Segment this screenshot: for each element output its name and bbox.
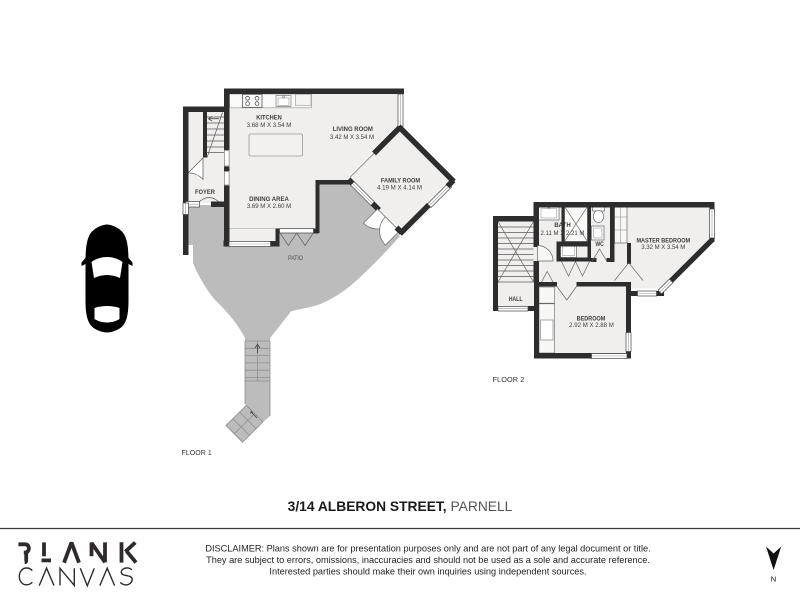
- svg-text:4.19 M X 4.14 M: 4.19 M X 4.14 M: [377, 184, 422, 191]
- svg-text:FLOOR 1: FLOOR 1: [182, 448, 212, 457]
- svg-text:BATH: BATH: [554, 222, 571, 229]
- svg-text:DISCLAIMER: Plans shown are fo: DISCLAIMER: Plans shown are for presenta…: [205, 544, 650, 554]
- svg-text:They are subject to errors, om: They are subject to errors, omissions, i…: [206, 555, 650, 565]
- svg-text:3.68 M X 3.54 M: 3.68 M X 3.54 M: [247, 122, 292, 129]
- svg-text:FOYER: FOYER: [195, 189, 215, 196]
- svg-text:Interested parties should make: Interested parties should make their own…: [269, 567, 586, 577]
- svg-text:HALL: HALL: [509, 296, 523, 303]
- svg-text:KITCHEN: KITCHEN: [256, 115, 282, 122]
- svg-text:3/14 ALBERON STREET, PARNELL: 3/14 ALBERON STREET, PARNELL: [288, 499, 513, 514]
- svg-text:WC: WC: [595, 241, 604, 248]
- svg-text:FLOOR 2: FLOOR 2: [493, 375, 525, 384]
- svg-text:3.69 M X 2.60 M: 3.69 M X 2.60 M: [247, 203, 291, 210]
- svg-text:DINING AREA: DINING AREA: [249, 196, 289, 203]
- svg-text:N: N: [771, 575, 776, 584]
- svg-text:2.92 M X 2.88 M: 2.92 M X 2.88 M: [569, 322, 614, 329]
- svg-text:2.11 M X 2.21 M: 2.11 M X 2.21 M: [541, 230, 585, 237]
- svg-text:LIVING ROOM: LIVING ROOM: [333, 126, 373, 133]
- svg-text:3.32 M X 3.54 M: 3.32 M X 3.54 M: [641, 244, 685, 251]
- svg-text:3.42 M X 3.54 M: 3.42 M X 3.54 M: [330, 134, 374, 141]
- svg-text:PATIO: PATIO: [288, 255, 303, 262]
